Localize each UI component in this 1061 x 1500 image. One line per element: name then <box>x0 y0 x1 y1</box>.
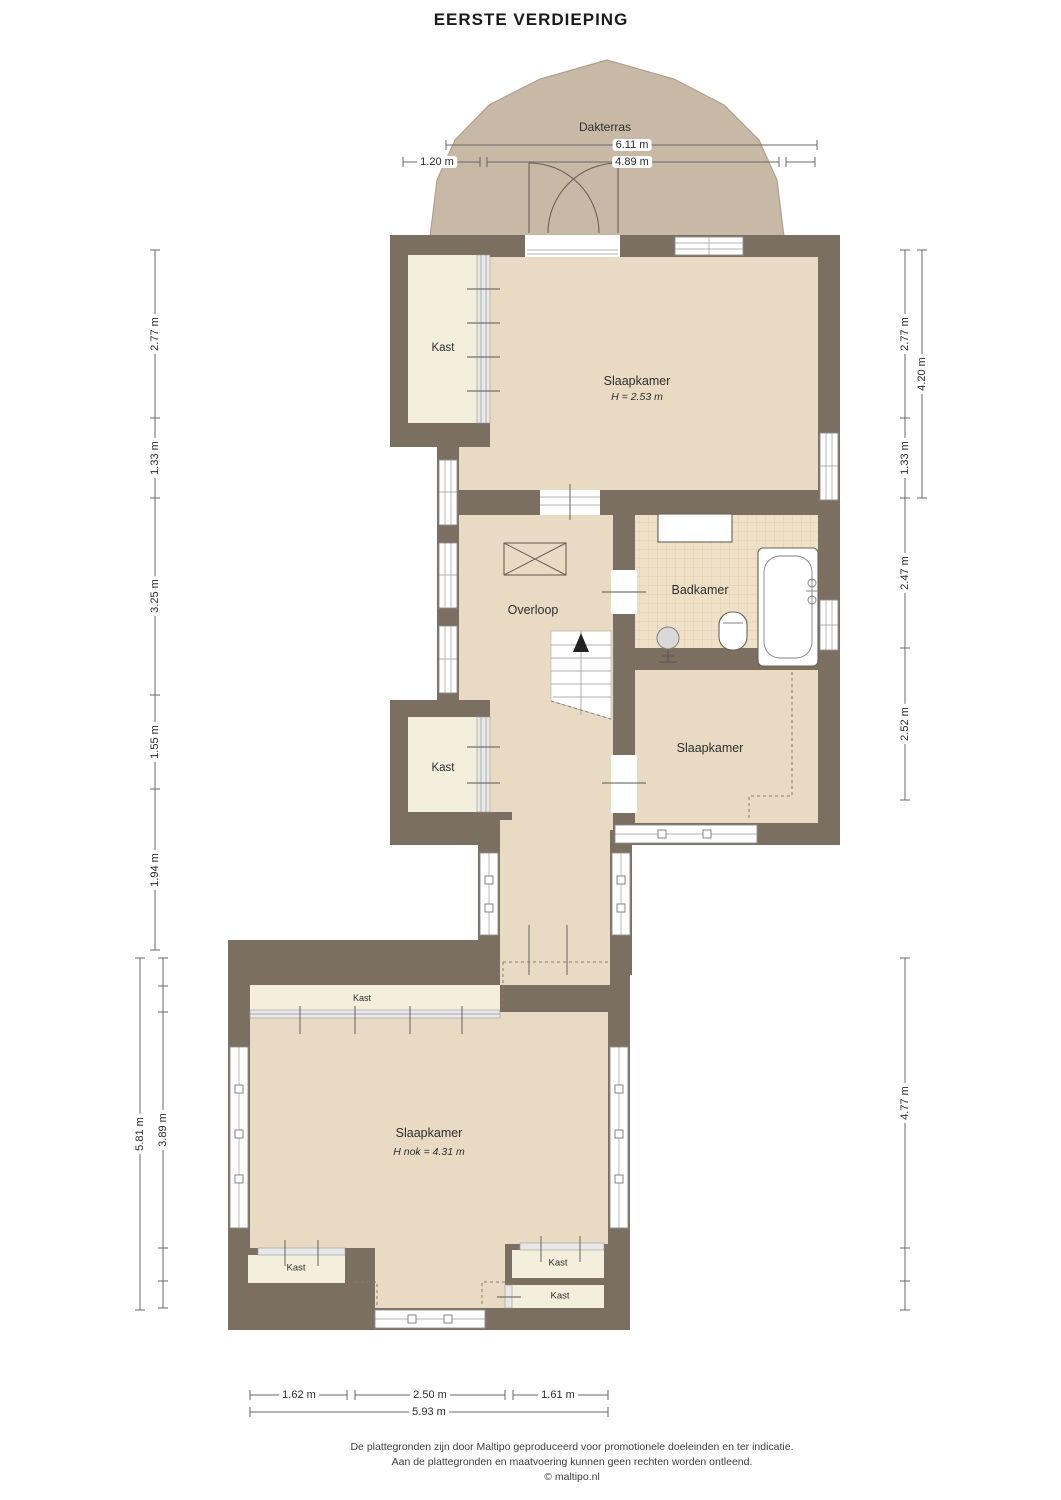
dim-bottom-2: 1.61 m <box>538 1389 578 1401</box>
window <box>820 433 838 500</box>
dim-bottom-1: 2.50 m <box>410 1389 450 1401</box>
dim-right-upper-1: 1.33 m <box>899 438 911 478</box>
slaapkamer-top-height: H = 2.53 m <box>611 391 663 403</box>
slaapkamer-bottom-label: Slaapkamer <box>396 1126 463 1140</box>
roof-terrace-shape <box>430 60 784 237</box>
dim-left-upper-1: 1.33 m <box>149 438 161 478</box>
window <box>615 825 757 843</box>
window <box>612 853 630 935</box>
dim-right-lower: 4.77 m <box>899 1083 911 1123</box>
kast-bottom-left-label: Kast <box>286 1263 305 1274</box>
slaapkamer-top-label: Slaapkamer <box>604 374 671 388</box>
floorplan-canvas: EERSTE VERDIEPING Dakterras 6.11 m 1.20 … <box>0 0 1061 1500</box>
kast-strip-label: Kast <box>353 993 371 1003</box>
slaapkamer-bottom-height: H nok = 4.31 m <box>393 1146 465 1158</box>
kast-bottom-right-2-label: Kast <box>550 1291 569 1302</box>
dim-bottom-total: 5.93 m <box>409 1406 449 1418</box>
dim-left-lower-inner: 3.89 m <box>157 1110 169 1150</box>
kast-mid-label: Kast <box>431 762 454 774</box>
toilet <box>719 612 747 650</box>
kast-strip-floor <box>250 985 500 1012</box>
page-title: EERSTE VERDIEPING <box>434 10 629 30</box>
bathroom-counter <box>658 514 732 542</box>
corridor-floor <box>500 820 610 985</box>
bathtub <box>758 548 818 666</box>
dim-terrace-inner: 4.89 m <box>612 156 652 168</box>
room-kast-top-floor <box>408 255 478 423</box>
window <box>820 600 838 650</box>
dim-right-upper-3: 2.52 m <box>899 704 911 744</box>
window <box>375 1310 485 1328</box>
dim-bottom-0: 1.62 m <box>279 1389 319 1401</box>
window <box>439 543 457 608</box>
window <box>675 237 743 255</box>
overloop-label: Overloop <box>508 603 559 617</box>
window <box>439 460 457 525</box>
dim-right-upper-0: 2.77 m <box>899 314 911 354</box>
window <box>439 626 457 693</box>
slaapkamer-mid-label: Slaapkamer <box>677 741 744 755</box>
dim-terrace-left: 1.20 m <box>417 156 457 168</box>
footer-line-1: De plattegronden zijn door Maltipo gepro… <box>350 1441 793 1453</box>
window <box>230 1047 248 1228</box>
terrace-label: Dakterras <box>579 120 631 134</box>
dim-left-upper-2: 3.25 m <box>149 576 161 616</box>
dim-left-upper-0: 2.77 m <box>149 314 161 354</box>
dim-left-lower-total: 5.81 m <box>134 1114 146 1154</box>
footer-line-3: © maltipo.nl <box>544 1471 600 1483</box>
dim-left-upper-3: 1.55 m <box>149 722 161 762</box>
dim-left-upper-4: 1.94 m <box>149 850 161 890</box>
kast-bottom-right-1-label: Kast <box>548 1258 567 1269</box>
dim-right-upper-total: 4.20 m <box>916 354 928 394</box>
floor-layer <box>228 255 818 1308</box>
badkamer-label: Badkamer <box>672 583 729 597</box>
footer-line-2: Aan de plattegronden en maatvoering kunn… <box>392 1456 753 1468</box>
window <box>610 1047 628 1228</box>
dim-right-upper-2: 2.47 m <box>899 553 911 593</box>
kast-top-label: Kast <box>431 342 454 354</box>
dim-terrace-width: 6.11 m <box>613 139 652 151</box>
window <box>480 853 498 935</box>
